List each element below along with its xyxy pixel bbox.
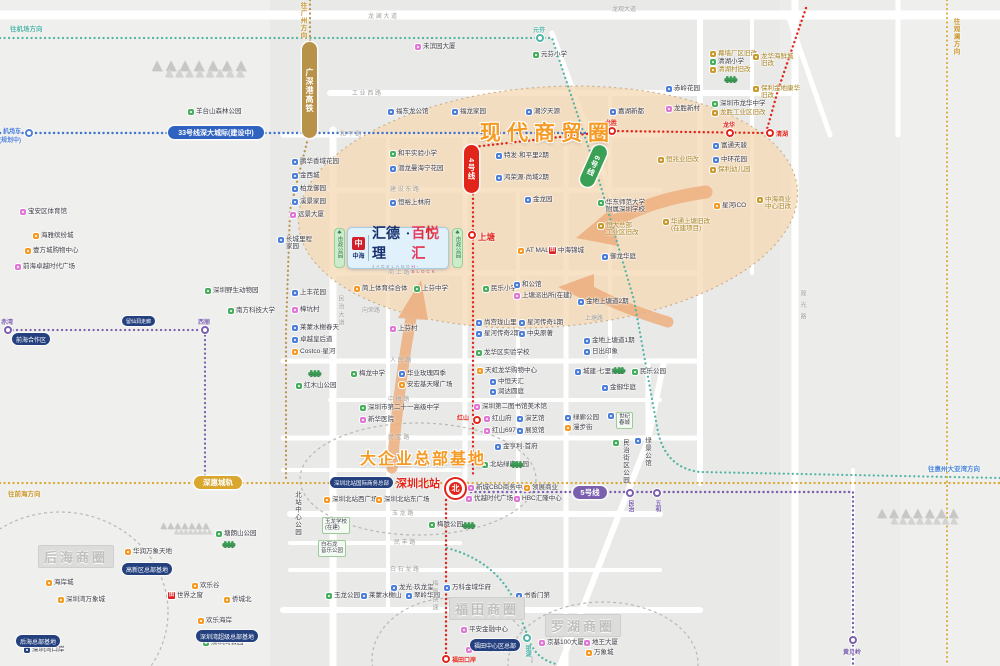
blue-marker-icon bbox=[584, 338, 590, 344]
blue-marker-icon bbox=[390, 200, 396, 206]
poi-gold: 保利金地康华 旧改 bbox=[753, 85, 800, 100]
blue-marker-icon bbox=[399, 371, 405, 377]
poi-label: 鹏华香域花园 bbox=[300, 158, 339, 165]
poi-label: 世纪 春城 bbox=[616, 412, 633, 429]
poi-pink: 龙胜新村 bbox=[666, 105, 700, 112]
city-location-map: 中 中海 汇德理 · 百悦汇 JADELAND H-BLOCK ♣ 市政公园 ♣… bbox=[0, 0, 1000, 666]
station-label: 银湖 bbox=[523, 645, 532, 657]
poi-label: 深圳湾万象城 bbox=[66, 596, 105, 603]
poi-label: 恒兆业旧改 bbox=[666, 156, 699, 163]
poi-label: 卓越皇后道 bbox=[300, 336, 333, 343]
green-marker-icon bbox=[188, 109, 194, 115]
pink-marker-icon bbox=[666, 106, 672, 112]
green-marker-icon bbox=[533, 52, 539, 58]
poi-orange: 领展商业 bbox=[524, 484, 558, 491]
gold-marker-icon bbox=[710, 51, 716, 57]
station-机场东 bbox=[25, 129, 33, 137]
poi-label: 深圳湾口岸 bbox=[32, 646, 65, 653]
orange-marker-icon bbox=[714, 203, 720, 209]
blue-marker-icon bbox=[361, 593, 367, 599]
poi-label: 保利金地康华 旧改 bbox=[761, 85, 800, 100]
poi-green: 白石龙 音乐公园 bbox=[318, 540, 346, 557]
blue-marker-icon bbox=[390, 166, 396, 172]
poi-green: 玉龙公园 bbox=[326, 592, 360, 599]
blue-marker-icon bbox=[610, 109, 616, 115]
poi-label: 京基100大厦 bbox=[547, 639, 584, 646]
poi-green: 红木山公园 bbox=[296, 382, 337, 389]
poi-label: 漫步街 bbox=[573, 424, 593, 431]
poi-green: 深圳市龙华中学 bbox=[712, 100, 766, 107]
blue-marker-icon bbox=[490, 379, 496, 385]
street-label: 人 民 路 bbox=[390, 355, 411, 364]
poi-blue: 中恒天汇 bbox=[490, 378, 524, 385]
poi-pink: 地王大厦 bbox=[584, 639, 618, 646]
poi-label: 绿景公馆 bbox=[643, 437, 650, 467]
poi-label: 演艺馆 bbox=[525, 415, 545, 422]
poi-pink: 平安金融中心 bbox=[461, 626, 508, 633]
poi-blue: 演艺馆 bbox=[517, 415, 545, 422]
poi-blue: 万科金域华府 bbox=[444, 584, 491, 591]
poi-label: 日出印象 bbox=[592, 348, 618, 355]
poi-orange: 简上体育综合体 bbox=[354, 285, 408, 292]
poi-blue: 金地上塘道1期 bbox=[584, 337, 635, 344]
poi-label: 龙华海鲜城 旧改 bbox=[761, 53, 794, 68]
poi-label: 新华医院 bbox=[368, 416, 394, 423]
station-label: 清湖 bbox=[776, 129, 788, 138]
poi-blue: 特发·和平里2期 bbox=[496, 152, 549, 159]
poi-orange: 星河iCO bbox=[714, 202, 746, 209]
poi-blue: 上丰花园 bbox=[292, 289, 326, 296]
hq-pill: 留仙洞走廊 bbox=[122, 316, 155, 326]
pink-marker-icon bbox=[514, 496, 520, 502]
poi-pink: 上塘派出所(在建) bbox=[514, 292, 572, 299]
station-label: 民治 bbox=[626, 500, 635, 512]
poi-label: 金亨利·首府 bbox=[503, 443, 538, 450]
gold-marker-icon bbox=[598, 223, 604, 229]
poi-blue: 龙光·玖龙玺 bbox=[391, 584, 434, 591]
blue-marker-icon bbox=[292, 173, 298, 179]
poi-gold: 龙胜工业区旧改 bbox=[712, 109, 766, 116]
poi-label: 领展商业 bbox=[532, 484, 558, 491]
poi-label: 上塘派出所(在建) bbox=[522, 292, 572, 299]
blue-marker-icon bbox=[517, 428, 523, 434]
poi-pink: 宝安区体育馆 bbox=[20, 208, 67, 215]
zone-watermark: 福田商圈 bbox=[449, 597, 525, 620]
poi-label: 世界之窗 bbox=[177, 592, 203, 599]
poi-label: 赤岭花园 bbox=[674, 85, 700, 92]
pink-marker-icon bbox=[539, 640, 545, 646]
zhonghai-logo-icon: 中 bbox=[352, 237, 365, 250]
poi-green: 深圳野生动物园 bbox=[205, 287, 259, 294]
poi-orange: 万象城 bbox=[586, 649, 614, 656]
poi-pink: 远景大厦 bbox=[290, 211, 324, 218]
hq-pill: 后海总部基地 bbox=[16, 635, 60, 647]
poi-label: 清湖村旧改 bbox=[718, 66, 751, 73]
blue-marker-icon bbox=[602, 385, 608, 391]
blue-marker-icon bbox=[519, 331, 525, 337]
green-marker-icon bbox=[613, 440, 619, 446]
poi-label: 金龙园 bbox=[533, 196, 553, 203]
blue-marker-icon bbox=[565, 415, 571, 421]
blue-marker-icon bbox=[608, 413, 614, 419]
street-label: 向荣路 bbox=[362, 305, 380, 314]
blue-marker-icon bbox=[578, 299, 584, 305]
orange-marker-icon bbox=[518, 248, 524, 254]
station-label: 上塘 bbox=[478, 231, 495, 243]
station-label: 赤湾 bbox=[1, 317, 13, 326]
poi-blue: 嘉湖新都 bbox=[610, 108, 644, 115]
poi-green: 民治街区公园 bbox=[613, 439, 628, 484]
poi-label: 金西城 bbox=[300, 172, 320, 179]
poi-label: 深圳市龙华中学 bbox=[720, 100, 766, 107]
zone-watermark: 后海商圈 bbox=[38, 545, 114, 568]
station-龙华 bbox=[726, 129, 734, 137]
orange-marker-icon bbox=[376, 497, 382, 503]
poi-label: 华业玫瑰四季 bbox=[407, 370, 446, 377]
blue-marker-icon bbox=[391, 585, 397, 591]
green-marker-icon bbox=[390, 151, 396, 157]
poi-label: 梅陇公园 bbox=[437, 521, 463, 528]
blue-marker-icon bbox=[496, 153, 502, 159]
poi-blue: 恒裕上林府 bbox=[390, 199, 431, 206]
green-marker-icon bbox=[326, 593, 332, 599]
blue-marker-icon bbox=[495, 444, 501, 450]
poi-label: 金御华庭 bbox=[610, 384, 636, 391]
project-name-dot: · bbox=[406, 227, 411, 243]
poi-label: 白石龙 音乐公园 bbox=[318, 540, 346, 557]
pink-marker-icon bbox=[415, 44, 421, 50]
poi-label: 北站中心公园 bbox=[293, 491, 300, 536]
poi-gold: 幕墙厂区旧改 bbox=[710, 50, 757, 57]
poi-green: 清湖小学 bbox=[710, 58, 744, 65]
poi-label: 万科金域华府 bbox=[452, 584, 491, 591]
poi-pink: 京基100大厦 bbox=[539, 639, 584, 646]
street-label: 和 平 路 bbox=[340, 129, 361, 138]
hq-pill: 深圳湾超级总部基地 bbox=[196, 630, 258, 642]
poi-gold: 中海商业 中心旧改 bbox=[757, 196, 791, 211]
poi-label: 欢乐海岸 bbox=[206, 617, 232, 624]
station-上塘 bbox=[468, 231, 476, 239]
poi-label: 新城CBD商务中心 bbox=[476, 484, 529, 491]
poi-orange: 海岸城 bbox=[46, 579, 74, 586]
hq-pill: 福田中心区总部 bbox=[470, 639, 520, 651]
gold-marker-icon bbox=[710, 67, 716, 73]
blue-marker-icon bbox=[635, 438, 641, 444]
mountain-icon: ▲▲▲▲▲▲▲▲ bbox=[172, 526, 210, 536]
poi-gold: 保利幼儿园 bbox=[710, 166, 751, 173]
poi-blue: 星河传奇2期 bbox=[476, 330, 520, 337]
orange-marker-icon bbox=[324, 497, 330, 503]
blue-marker-icon bbox=[525, 197, 531, 203]
gold-marker-icon bbox=[757, 197, 763, 203]
poi-label: 民乐公园 bbox=[640, 368, 666, 375]
station-元芬 bbox=[536, 34, 544, 42]
poi-orange: 安宏基天曜广场 bbox=[399, 381, 453, 388]
trees-icon: ♣♣♣ bbox=[222, 539, 233, 550]
street-label: 龙 澜 大 道 bbox=[368, 11, 397, 20]
poi-blue: 华业玫瑰四季 bbox=[399, 370, 446, 377]
park-strip-label: 市政公园 bbox=[336, 236, 344, 258]
poi-blue: 润达圆庭 bbox=[490, 388, 524, 395]
poi-gold: 龙华海鲜城 旧改 bbox=[753, 53, 794, 68]
poi-label: 潜龙曼海宁花园 bbox=[398, 165, 444, 172]
blue-marker-icon bbox=[526, 109, 532, 115]
poi-green: 龙华区实验学校 bbox=[476, 349, 530, 356]
poi-label: 华通上塘旧改 (在建项目) bbox=[671, 218, 710, 233]
poi-label: 御龙华庭 bbox=[610, 253, 636, 260]
project-name: 汇德理 bbox=[372, 223, 405, 263]
poi-label: 恒裕上林府 bbox=[398, 199, 431, 206]
direction-label: 往前海方向 bbox=[8, 488, 41, 498]
street-label: 民 丰 路 bbox=[394, 537, 415, 546]
station-黄贝岭 bbox=[849, 636, 857, 644]
poi-label: 绿廊公园 bbox=[573, 414, 599, 421]
blue-marker-icon bbox=[519, 320, 525, 326]
street-label: 白 石 龙 路 bbox=[390, 564, 419, 573]
gold-marker-icon bbox=[658, 157, 664, 163]
station-西丽 bbox=[201, 326, 209, 334]
line-pill-深惠城轨: 深惠城轨 bbox=[194, 476, 242, 489]
poi-blue: 潜龙曼海宁花园 bbox=[390, 165, 444, 172]
poi-blue: 福龙家园 bbox=[452, 108, 486, 115]
hq-pill: 高新区总部基地 bbox=[122, 563, 172, 575]
blue-marker-icon bbox=[292, 186, 298, 192]
poi-pink: HBC汇隆中心 bbox=[514, 495, 562, 502]
poi-label: 恒大总部 工业区旧改 bbox=[606, 222, 639, 237]
orange-marker-icon bbox=[33, 233, 39, 239]
station-清湖 bbox=[766, 129, 774, 137]
poi-pink: 前海卓越时代广场 bbox=[15, 263, 75, 270]
poi-label: 幕墙厂区旧改 bbox=[718, 50, 757, 57]
poi-label: 中恒天汇 bbox=[498, 378, 524, 385]
line-pill-4号线: 4号线 bbox=[464, 145, 479, 193]
green-marker-icon bbox=[228, 308, 234, 314]
mountain-icon: ▲▲▲▲▲▲▲▲ bbox=[162, 65, 243, 81]
pink-marker-icon bbox=[360, 417, 366, 423]
poi-label: 星河传奇1期 bbox=[527, 319, 563, 326]
poi-pink: 深圳第二图书馆美术馆 bbox=[474, 403, 547, 410]
street-label: 龙观大道 bbox=[612, 4, 636, 13]
navy-marker-icon bbox=[24, 647, 30, 653]
pink-marker-icon bbox=[468, 485, 474, 491]
orange-marker-icon bbox=[524, 485, 530, 491]
poi-blue: 中环花园 bbox=[713, 156, 747, 163]
poi-label: 星河传奇2期 bbox=[484, 330, 520, 337]
poi-label: 上丰花园 bbox=[300, 289, 326, 296]
blue-marker-icon bbox=[292, 159, 298, 165]
station-五和 bbox=[653, 489, 661, 497]
poi-label: 莱蒙水榭山 bbox=[369, 592, 402, 599]
poi-pink: 樟坑村 bbox=[292, 306, 320, 313]
poi-label: 嘉湖新都 bbox=[618, 108, 644, 115]
blue-marker-icon bbox=[278, 237, 284, 243]
poi-label: 平安金融中心 bbox=[469, 626, 508, 633]
orange-marker-icon bbox=[46, 580, 52, 586]
red-square-icon: 田 bbox=[549, 247, 556, 254]
poi-label: 羊台山森林公园 bbox=[196, 108, 242, 115]
poi-label: 玉龙学校 (在建) bbox=[322, 517, 350, 534]
orange-marker-icon bbox=[565, 425, 571, 431]
green-marker-icon bbox=[205, 288, 211, 294]
poi-pink: 红山府 bbox=[484, 415, 512, 422]
poi-orange: 海雅缤纷城 bbox=[33, 232, 74, 239]
poi-label: 福龙家园 bbox=[460, 108, 486, 115]
pink-marker-icon bbox=[484, 416, 490, 422]
trees-icon: ♣♣♣ bbox=[612, 365, 623, 376]
street-label: 民治大道 bbox=[336, 295, 345, 327]
direction-label: 往观澜方向 bbox=[950, 18, 960, 56]
green-marker-icon bbox=[296, 383, 302, 389]
poi-label: 民治街区公园 bbox=[621, 439, 628, 484]
poi-blue: 绿景公馆 bbox=[635, 437, 650, 467]
poi-label: 红木山公园 bbox=[304, 382, 337, 389]
park-strip-west: ♣ 市政公园 bbox=[334, 228, 345, 268]
poi-landmark: 田世界之窗 bbox=[168, 592, 203, 599]
poi-label: 万象城 bbox=[594, 649, 614, 656]
street-label: 工 业 西 路 bbox=[352, 88, 381, 97]
pink-marker-icon bbox=[484, 428, 490, 434]
poi-green: 梅龙中学 bbox=[351, 370, 385, 377]
poi-label: 保利幼儿园 bbox=[718, 166, 751, 173]
poi-label: 玉龙公园 bbox=[334, 592, 360, 599]
green-marker-icon bbox=[351, 371, 357, 377]
street-label: 建 设 东 路 bbox=[390, 184, 419, 193]
poi-blue: 和公馆 bbox=[514, 281, 542, 288]
poi-green: 南方科技大学 bbox=[228, 307, 275, 314]
blue-marker-icon bbox=[517, 416, 523, 422]
poi-orange: 漫步街 bbox=[565, 424, 593, 431]
poi-blue: 潮汐天源 bbox=[526, 108, 560, 115]
blue-marker-icon bbox=[292, 325, 298, 331]
poi-pink: 红山6979 bbox=[484, 427, 519, 434]
orange-marker-icon bbox=[58, 597, 64, 603]
green-marker-icon bbox=[712, 101, 718, 107]
poi-label: 柏龙御园 bbox=[300, 185, 326, 192]
line-pill-5号线: 5号线 bbox=[573, 486, 607, 499]
poi-label: 深圳市第二十一高级中学 bbox=[368, 404, 440, 411]
poi-gold: 恒兆业旧改 bbox=[658, 156, 699, 163]
station-big-label: 深圳北站 bbox=[396, 475, 440, 491]
poi-blue: 中央原著 bbox=[519, 330, 553, 337]
divider bbox=[368, 235, 369, 261]
hq-pill: 前海合作区 bbox=[12, 333, 50, 345]
poi-label: 书香门第 bbox=[524, 592, 550, 599]
street-label: 民 宝 路 bbox=[388, 432, 409, 441]
poi-green: 塘朗山公园 bbox=[216, 530, 257, 537]
poi-label: 上芬中学 bbox=[422, 285, 448, 292]
blue-marker-icon bbox=[452, 109, 458, 115]
poi-gold: 华通上塘旧改 (在建项目) bbox=[663, 218, 710, 233]
pink-marker-icon bbox=[584, 640, 590, 646]
orange-marker-icon bbox=[354, 286, 360, 292]
park-strip-east: ♣ 市政公园 bbox=[452, 228, 463, 268]
poi-blue: 长城里程 家园 bbox=[278, 236, 312, 251]
poi-orange: 华润万象天地 bbox=[125, 548, 172, 555]
poi-label: 简上体育综合体 bbox=[362, 285, 408, 292]
shenzhen-north-station-icon: 北 bbox=[444, 477, 467, 500]
poi-label: 中海商业 中心旧改 bbox=[765, 196, 791, 211]
blue-marker-icon bbox=[575, 369, 581, 375]
poi-blue: 莱蒙水榭春天 bbox=[292, 324, 339, 331]
street-label: 玉 龙 路 bbox=[392, 508, 413, 517]
hq-pill: 深圳北站国际商务总部 bbox=[330, 477, 393, 488]
poi-label: 元芬小学 bbox=[541, 51, 567, 58]
poi-orange: 壹方城购物中心 bbox=[25, 247, 79, 254]
poi-green: 北站中心公园 bbox=[293, 491, 300, 536]
poi-label: 优越时代广场 bbox=[474, 495, 513, 502]
poi-label: 中央原著 bbox=[527, 330, 553, 337]
pink-marker-icon bbox=[474, 404, 480, 410]
poi-label: 星河iCO bbox=[722, 202, 746, 209]
trees-icon: ♣♣♣ bbox=[308, 368, 319, 379]
street-label: 中 梅 路 bbox=[388, 394, 409, 403]
poi-blue: 星河传奇1期 bbox=[519, 319, 563, 326]
orange-marker-icon bbox=[224, 597, 230, 603]
trees-icon: ♣♣♣ bbox=[724, 74, 735, 85]
station-福田口岸 bbox=[442, 655, 450, 663]
pink-marker-icon bbox=[290, 212, 296, 218]
park-strip-label: 市政公园 bbox=[454, 236, 462, 258]
blue-marker-icon bbox=[292, 199, 298, 205]
poi-green: 北站绿廊公园 bbox=[482, 461, 529, 468]
developer-name: 中海 bbox=[352, 251, 364, 260]
poi-green: 梅陇公园 bbox=[429, 521, 463, 528]
street-label: 梅观快速 bbox=[430, 580, 439, 612]
trees-icon: ♣♣♣ bbox=[510, 459, 521, 470]
poi-label: 红山府 bbox=[492, 415, 512, 422]
station-label: 红山 bbox=[447, 413, 469, 422]
orange-marker-icon bbox=[192, 583, 198, 589]
station-label: 五和 bbox=[653, 500, 662, 512]
poi-label: 未滨园大厦 bbox=[423, 43, 456, 50]
blue-marker-icon bbox=[292, 290, 298, 296]
poi-blue: 世纪 春城 bbox=[608, 412, 633, 429]
poi-blue: 御龙华庭 bbox=[602, 253, 636, 260]
poi-label: 远景大厦 bbox=[298, 211, 324, 218]
zone-watermark: 罗湖商圈 bbox=[545, 614, 621, 637]
poi-label: 溪景家园 bbox=[300, 198, 326, 205]
poi-pink: 上芬村 bbox=[390, 325, 418, 332]
green-marker-icon bbox=[476, 350, 482, 356]
blue-marker-icon bbox=[444, 585, 450, 591]
orange-marker-icon bbox=[292, 349, 298, 355]
blue-marker-icon bbox=[496, 175, 502, 181]
pink-marker-icon bbox=[292, 307, 298, 313]
street-label: 简 上 路 bbox=[388, 267, 409, 276]
blue-marker-icon bbox=[666, 86, 672, 92]
poi-pink: 新城CBD商务中心 bbox=[468, 484, 529, 491]
gold-marker-icon bbox=[753, 54, 759, 60]
poi-label: Costco·星河 bbox=[300, 348, 335, 355]
poi-label: 和平实验小学 bbox=[398, 150, 437, 157]
station-label: 福田口岸 bbox=[452, 655, 476, 664]
green-marker-icon bbox=[216, 531, 222, 537]
blue-marker-icon bbox=[713, 157, 719, 163]
poi-orange: 深圳湾万象城 bbox=[58, 596, 105, 603]
red-square-icon: 田 bbox=[168, 592, 175, 599]
station-label: 元芬 bbox=[533, 25, 545, 34]
poi-orange: 深圳北站西广场 bbox=[324, 496, 378, 503]
station-赤湾 bbox=[4, 326, 12, 334]
poi-label: 中海锦城 bbox=[558, 247, 584, 254]
poi-green: 羊台山森林公园 bbox=[188, 108, 242, 115]
zone-title: 大企业总部基地 bbox=[360, 445, 486, 469]
pink-marker-icon bbox=[514, 293, 520, 299]
orange-marker-icon bbox=[399, 382, 405, 388]
poi-green: 上芬中学 bbox=[414, 285, 448, 292]
poi-blue: 金地上塘道2期 bbox=[578, 298, 629, 305]
project-subname: 百悦汇 bbox=[411, 223, 444, 263]
